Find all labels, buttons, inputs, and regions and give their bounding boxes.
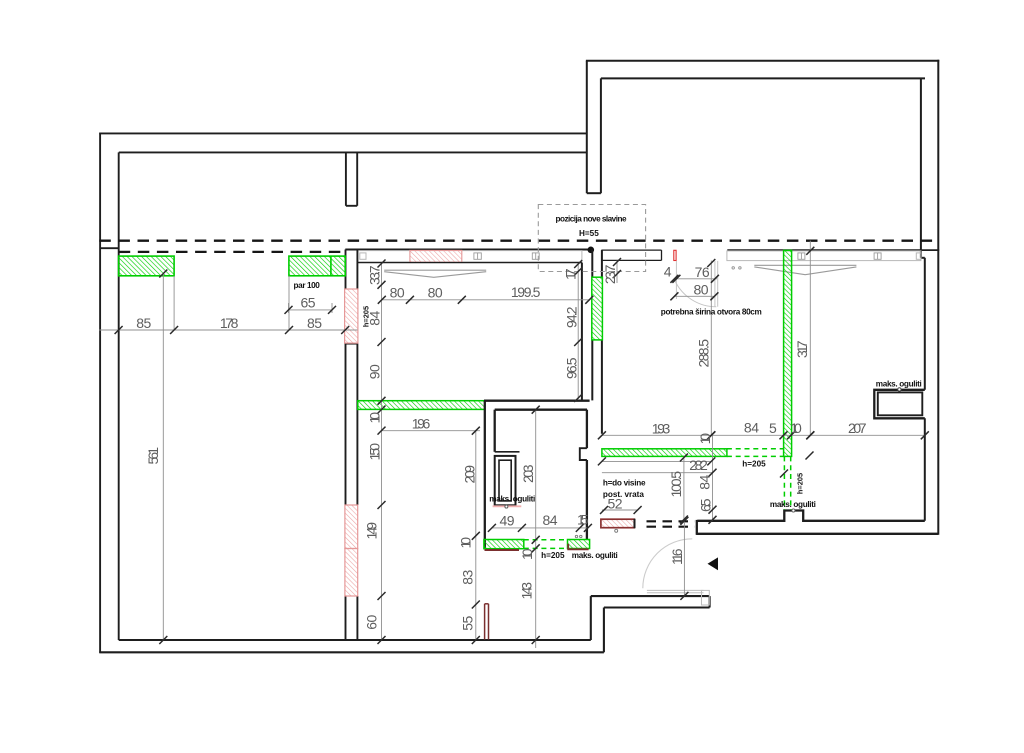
svg-text:203: 203 [520, 464, 536, 483]
svg-text:84: 84 [744, 420, 759, 436]
svg-text:pozicija nove slavine: pozicija nove slavine [556, 215, 627, 224]
svg-text:maks. oguliti: maks. oguliti [876, 379, 922, 388]
svg-text:83: 83 [460, 570, 476, 585]
svg-text:60: 60 [364, 615, 380, 630]
svg-text:100.5: 100.5 [668, 471, 684, 498]
svg-text:85: 85 [136, 315, 151, 331]
svg-text:199.5: 199.5 [511, 284, 541, 300]
svg-text:15: 15 [577, 512, 589, 528]
svg-text:84: 84 [543, 512, 558, 528]
svg-text:80: 80 [428, 285, 443, 301]
svg-text:10: 10 [790, 420, 802, 436]
svg-text:23.7: 23.7 [602, 264, 618, 284]
svg-text:150: 150 [366, 443, 382, 461]
svg-text:317: 317 [794, 340, 810, 358]
svg-text:h=205: h=205 [362, 306, 371, 327]
svg-text:par 100: par 100 [294, 281, 321, 290]
svg-text:6.5: 6.5 [698, 498, 714, 512]
svg-text:76: 76 [695, 264, 710, 280]
svg-text:55: 55 [460, 616, 476, 631]
svg-text:maks. oguliti: maks. oguliti [489, 495, 535, 504]
svg-text:80: 80 [390, 285, 405, 301]
svg-text:90: 90 [366, 364, 382, 379]
svg-text:4: 4 [664, 263, 672, 279]
svg-text:193: 193 [652, 421, 671, 437]
svg-text:116: 116 [669, 548, 685, 565]
svg-text:10: 10 [697, 433, 713, 445]
svg-text:80: 80 [694, 281, 709, 297]
svg-text:85: 85 [307, 315, 322, 331]
svg-text:196: 196 [412, 416, 431, 432]
svg-text:post. vrata: post. vrata [603, 490, 644, 499]
svg-text:h=do visine: h=do visine [603, 479, 646, 488]
svg-text:282: 282 [689, 457, 708, 473]
svg-text:potrebna širina otvora 80cm: potrebna širina otvora 80cm [661, 308, 762, 317]
svg-text:H=55: H=55 [579, 229, 599, 238]
svg-text:288.5: 288.5 [696, 339, 712, 368]
svg-text:96.5: 96.5 [563, 357, 579, 379]
svg-text:maks. oguliti: maks. oguliti [572, 551, 618, 560]
svg-text:h=205: h=205 [795, 473, 804, 494]
svg-text:178: 178 [220, 315, 239, 331]
svg-text:h=205: h=205 [742, 460, 766, 469]
svg-text:h=205: h=205 [541, 551, 565, 560]
svg-text:65: 65 [301, 295, 316, 311]
svg-text:maks. oguliti: maks. oguliti [770, 500, 816, 509]
svg-text:33.7: 33.7 [366, 265, 382, 285]
svg-text:17: 17 [563, 268, 579, 280]
svg-text:10: 10 [366, 412, 382, 424]
svg-text:94.2: 94.2 [563, 306, 579, 328]
svg-text:143: 143 [519, 582, 535, 600]
svg-text:49: 49 [500, 513, 515, 529]
svg-text:561: 561 [145, 447, 161, 465]
svg-text:5: 5 [769, 420, 777, 436]
svg-text:207: 207 [848, 420, 867, 436]
svg-text:149: 149 [364, 522, 380, 540]
svg-text:10: 10 [457, 537, 473, 549]
svg-text:84: 84 [696, 475, 712, 490]
svg-text:10: 10 [519, 548, 535, 560]
svg-text:209: 209 [462, 465, 478, 484]
